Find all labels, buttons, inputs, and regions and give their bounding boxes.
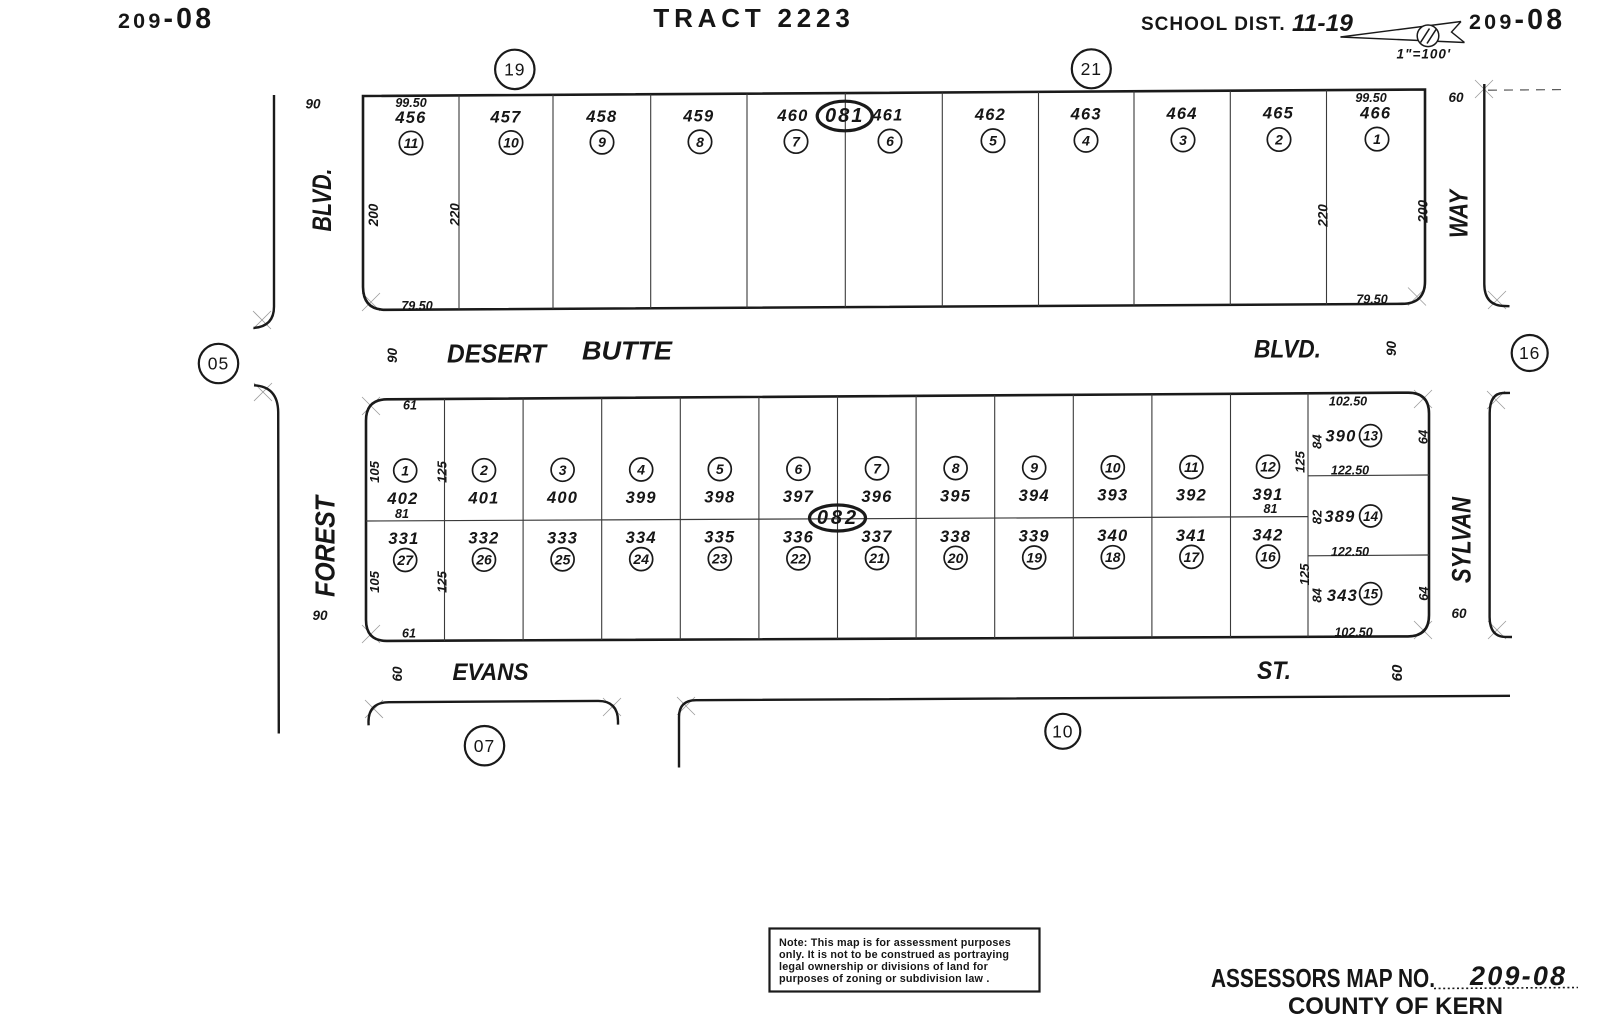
svg-text:DESERT: DESERT xyxy=(447,339,548,369)
svg-text:4: 4 xyxy=(636,461,645,477)
svg-text:8: 8 xyxy=(696,134,704,150)
svg-text:342: 342 xyxy=(1252,527,1283,545)
svg-text:26: 26 xyxy=(475,552,492,568)
svg-text:340: 340 xyxy=(1097,527,1128,545)
svg-text:457: 457 xyxy=(489,109,521,127)
svg-text:6: 6 xyxy=(886,133,894,149)
svg-text:105: 105 xyxy=(367,460,382,482)
svg-text:10: 10 xyxy=(503,135,519,151)
svg-text:3: 3 xyxy=(559,462,567,478)
svg-text:335: 335 xyxy=(704,529,735,547)
svg-text:462: 462 xyxy=(974,106,1006,124)
svg-text:209-08: 209-08 xyxy=(118,3,214,35)
svg-text:465: 465 xyxy=(1262,105,1294,123)
svg-text:EVANS: EVANS xyxy=(453,659,529,686)
svg-text:19: 19 xyxy=(1026,549,1042,565)
svg-text:99.50: 99.50 xyxy=(1355,91,1386,105)
svg-text:17: 17 xyxy=(1184,549,1201,565)
svg-text:399: 399 xyxy=(626,489,657,507)
svg-text:90: 90 xyxy=(1384,341,1399,357)
svg-text:459: 459 xyxy=(682,108,714,126)
svg-text:2: 2 xyxy=(1274,132,1283,148)
svg-text:125: 125 xyxy=(1297,563,1312,585)
svg-text:99.50: 99.50 xyxy=(395,96,426,110)
svg-text:401: 401 xyxy=(467,490,499,508)
svg-text:081: 081 xyxy=(825,105,864,127)
svg-text:7: 7 xyxy=(792,133,801,149)
svg-text:60: 60 xyxy=(390,666,405,682)
svg-text:392: 392 xyxy=(1176,486,1207,504)
svg-text:90: 90 xyxy=(385,348,400,364)
svg-text:336: 336 xyxy=(783,528,814,546)
svg-text:341: 341 xyxy=(1176,527,1207,545)
svg-text:64: 64 xyxy=(1416,586,1431,601)
svg-text:WAY: WAY xyxy=(1444,188,1474,238)
svg-text:125: 125 xyxy=(435,460,450,482)
svg-text:464: 464 xyxy=(1166,105,1198,123)
svg-text:BLVD.: BLVD. xyxy=(307,169,337,232)
svg-text:125: 125 xyxy=(435,570,450,592)
svg-text:legal ownership or divisions o: legal ownership or divisions of land for xyxy=(779,961,989,973)
svg-text:05: 05 xyxy=(208,354,229,374)
svg-text:400: 400 xyxy=(546,489,578,507)
svg-text:9: 9 xyxy=(598,134,606,150)
svg-text:60: 60 xyxy=(1389,664,1406,681)
svg-text:21: 21 xyxy=(1081,59,1102,79)
svg-text:402: 402 xyxy=(386,490,418,508)
svg-text:3: 3 xyxy=(1179,132,1187,148)
svg-text:SYLVAN: SYLVAN xyxy=(1447,497,1477,583)
svg-text:396: 396 xyxy=(861,488,892,506)
svg-text:SCHOOL DIST.: SCHOOL DIST. xyxy=(1141,14,1286,35)
svg-text:1: 1 xyxy=(401,463,409,479)
svg-text:209-08: 209-08 xyxy=(1469,4,1565,36)
svg-text:5: 5 xyxy=(716,461,724,477)
svg-text:122.50: 122.50 xyxy=(1331,464,1369,478)
svg-text:25: 25 xyxy=(554,551,571,567)
svg-text:BLVD.: BLVD. xyxy=(1254,336,1321,364)
svg-text:461: 461 xyxy=(871,107,903,125)
svg-text:24: 24 xyxy=(632,551,649,567)
svg-text:390: 390 xyxy=(1325,428,1356,446)
svg-text:1"=100': 1"=100' xyxy=(1397,47,1452,62)
svg-text:220: 220 xyxy=(1316,204,1331,228)
svg-text:21: 21 xyxy=(868,550,885,566)
svg-text:456: 456 xyxy=(394,109,426,127)
svg-text:11: 11 xyxy=(1184,459,1199,475)
svg-text:105: 105 xyxy=(367,570,382,592)
svg-text:460: 460 xyxy=(776,107,808,125)
svg-text:79.50: 79.50 xyxy=(401,299,432,313)
svg-text:82: 82 xyxy=(1310,509,1325,524)
svg-text:ST.: ST. xyxy=(1257,657,1291,685)
svg-text:FOREST: FOREST xyxy=(310,493,341,597)
svg-text:only. It is not to be construe: only. It is not to be construed as portr… xyxy=(779,949,1009,961)
svg-text:TRACT 2223: TRACT 2223 xyxy=(653,3,854,33)
svg-text:18: 18 xyxy=(1105,549,1121,565)
svg-text:90: 90 xyxy=(312,608,328,623)
svg-text:122.50: 122.50 xyxy=(1331,545,1369,559)
svg-text:60: 60 xyxy=(1451,606,1467,621)
svg-text:397: 397 xyxy=(783,488,814,506)
svg-text:463: 463 xyxy=(1070,106,1102,124)
svg-text:200: 200 xyxy=(366,203,381,227)
svg-text:2: 2 xyxy=(479,462,488,478)
svg-text:9: 9 xyxy=(1030,460,1038,476)
svg-text:8: 8 xyxy=(952,460,960,476)
svg-text:27: 27 xyxy=(396,552,414,568)
svg-text:220: 220 xyxy=(448,203,463,227)
svg-text:395: 395 xyxy=(940,487,971,505)
svg-text:60: 60 xyxy=(1448,90,1464,105)
svg-text:343: 343 xyxy=(1327,587,1358,605)
svg-text:Note: This map is for assessme: Note: This map is for assessment purpose… xyxy=(779,937,1011,949)
svg-text:64: 64 xyxy=(1416,429,1431,444)
svg-text:16: 16 xyxy=(1260,549,1276,565)
svg-text:07: 07 xyxy=(474,736,495,756)
svg-text:ASSESSORS MAP NO.: ASSESSORS MAP NO. xyxy=(1211,965,1435,993)
svg-text:398: 398 xyxy=(704,489,735,507)
svg-text:102.50: 102.50 xyxy=(1334,626,1372,640)
svg-text:16: 16 xyxy=(1519,343,1540,363)
svg-text:200: 200 xyxy=(1416,200,1431,224)
svg-text:13: 13 xyxy=(1363,429,1379,444)
svg-text:5: 5 xyxy=(989,133,997,149)
svg-text:389: 389 xyxy=(1324,508,1355,526)
svg-text:22: 22 xyxy=(790,550,807,566)
svg-text:61: 61 xyxy=(403,399,417,413)
svg-text:90: 90 xyxy=(305,97,321,112)
svg-text:purposes of zoning or subdivis: purposes of zoning or subdivision law . xyxy=(779,973,990,985)
svg-text:11: 11 xyxy=(404,135,419,151)
svg-text:10: 10 xyxy=(1105,459,1121,475)
svg-text:10: 10 xyxy=(1052,722,1073,742)
svg-text:15: 15 xyxy=(1363,587,1379,602)
svg-text:125: 125 xyxy=(1293,450,1308,472)
svg-text:4: 4 xyxy=(1081,132,1090,148)
svg-text:339: 339 xyxy=(1019,527,1050,545)
svg-text:81: 81 xyxy=(395,507,409,521)
svg-text:23: 23 xyxy=(711,551,728,567)
svg-text:1: 1 xyxy=(1373,131,1381,147)
svg-text:12: 12 xyxy=(1260,459,1276,475)
svg-text:338: 338 xyxy=(940,528,971,546)
svg-text:331: 331 xyxy=(388,530,419,548)
svg-text:334: 334 xyxy=(626,529,657,547)
svg-text:332: 332 xyxy=(468,530,499,548)
svg-text:81: 81 xyxy=(1264,502,1278,516)
svg-text:14: 14 xyxy=(1363,509,1379,524)
svg-text:466: 466 xyxy=(1359,104,1391,122)
svg-text:BUTTE: BUTTE xyxy=(582,336,673,366)
svg-text:102.50: 102.50 xyxy=(1329,395,1367,409)
svg-text:84: 84 xyxy=(1310,587,1325,602)
svg-text:337: 337 xyxy=(861,528,892,546)
svg-text:61: 61 xyxy=(402,626,416,640)
svg-text:7: 7 xyxy=(873,460,882,476)
svg-text:082: 082 xyxy=(817,507,859,529)
svg-text:394: 394 xyxy=(1019,487,1050,505)
svg-text:6: 6 xyxy=(795,461,803,477)
svg-text:209-08: 209-08 xyxy=(1469,961,1567,991)
svg-text:COUNTY OF KERN: COUNTY OF KERN xyxy=(1288,993,1503,1018)
svg-text:11-19: 11-19 xyxy=(1292,10,1353,37)
svg-text:20: 20 xyxy=(947,550,964,566)
svg-text:458: 458 xyxy=(585,108,617,126)
svg-text:79.50: 79.50 xyxy=(1356,293,1387,307)
svg-text:393: 393 xyxy=(1097,487,1128,505)
svg-text:333: 333 xyxy=(547,529,578,547)
svg-text:84: 84 xyxy=(1310,434,1325,449)
svg-text:19: 19 xyxy=(504,60,525,80)
